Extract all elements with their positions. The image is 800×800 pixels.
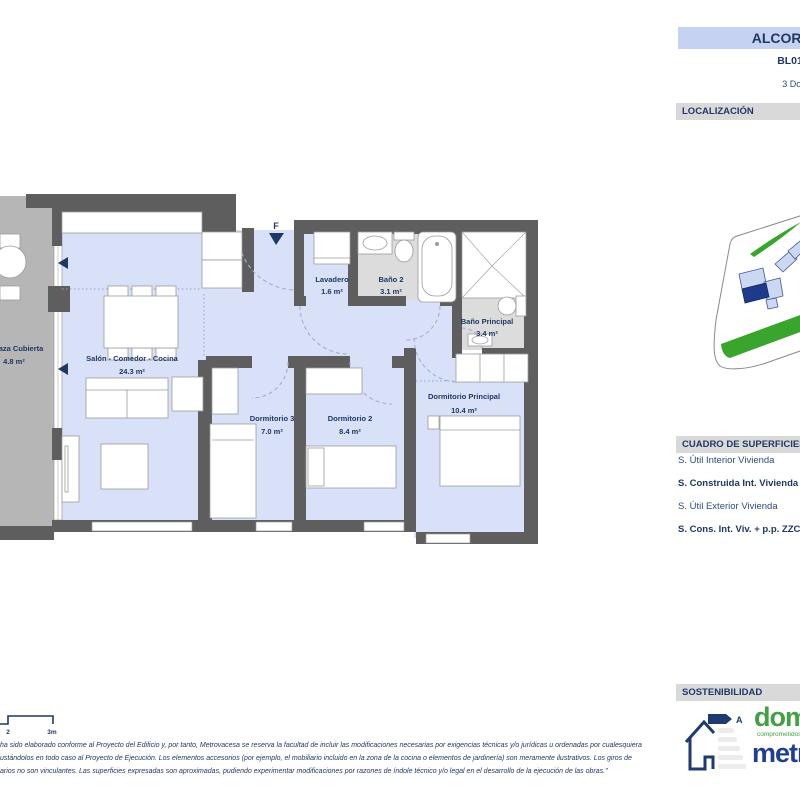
room-name: Dormitorio 2 <box>328 414 373 423</box>
room-name: Lavadero <box>315 275 349 284</box>
energy-rating-letter: A <box>736 715 743 725</box>
room-name: Baño Principal <box>461 317 514 326</box>
room-area: 3.1 m² <box>380 287 402 296</box>
section-superficies: CUADRO DE SUPERFICIES <box>676 436 800 453</box>
bathtub <box>418 232 456 302</box>
scale-tick-label: 3m <box>47 729 57 736</box>
project-title: ALCORA HOMES <box>678 27 800 49</box>
legal-disclaimer: ha sido elaborado conforme al Proyecto d… <box>0 739 800 778</box>
room-name: Baño 2 <box>378 275 403 284</box>
bath1-toilet <box>498 296 526 316</box>
window <box>364 522 404 531</box>
room-name: Dormitorio 3 <box>250 414 295 423</box>
room-area: 3.4 m² <box>476 329 498 338</box>
floorplan-svg: F Terraza Cubierta 4.8 m² Salón - Comedo… <box>0 185 545 550</box>
disclaimer-line: ha sido elaborado conforme al Proyecto d… <box>0 739 800 752</box>
room-name: Salón - Comedor - Cocina <box>86 354 179 363</box>
plan-sheet: ALCORA HOMES BL01_P2_2A 3 Dormitorios LO… <box>0 0 800 800</box>
shower-tray <box>462 232 526 298</box>
bath2-vanity <box>358 232 392 254</box>
room-area: 1.6 m² <box>321 287 343 296</box>
section-sostenibilidad: SOSTENIBILIDAD <box>676 684 800 701</box>
rating-arrow-icon <box>708 714 732 724</box>
armchair <box>172 377 203 411</box>
superficie-row: S. Construida Int. Vivienda <box>678 478 800 489</box>
tv-bench <box>62 436 79 502</box>
domum-tagline: comprometidos <box>757 731 800 738</box>
dwelling-type: 3 Dormitorios <box>678 79 800 89</box>
scale-tick-label: 2 <box>6 729 10 736</box>
room-name: Dormitorio Principal <box>428 392 500 401</box>
kitchen-counter <box>62 212 202 233</box>
window <box>256 522 292 531</box>
room-area: 7.0 m² <box>261 427 283 436</box>
domum-logo: domum <box>754 702 800 733</box>
superficie-row: S. Útil Exterior Vivienda <box>678 501 800 512</box>
disclaimer-line: arios no son vinculantes. Las superficie… <box>0 765 800 778</box>
room-area: 10.4 m² <box>451 406 477 415</box>
kitchen-cabinet <box>202 232 242 288</box>
window <box>92 522 192 531</box>
disclaimer-line: ustándolos en todo caso al Proyecto de E… <box>0 752 800 765</box>
bath2-toilet <box>394 232 414 262</box>
superficie-row: S. Útil Interior Vivienda <box>678 455 800 466</box>
room-area: 8.4 m² <box>339 427 361 436</box>
room-name: Terraza Cubierta <box>0 344 44 353</box>
room-area: 4.8 m² <box>3 357 25 366</box>
location-map <box>688 208 800 376</box>
scale-bar: 2 3m <box>0 710 70 740</box>
coffee-table <box>101 444 148 489</box>
window <box>426 534 470 543</box>
plan-code: BL01_P2_2A <box>678 55 800 67</box>
superficie-row: S. Cons. Int. Viv. + p.p. ZZCC <box>678 524 800 535</box>
washing-machine <box>314 232 350 264</box>
dining-table <box>104 286 178 360</box>
sofa <box>86 378 168 418</box>
entrance-label: F <box>273 221 279 231</box>
section-localizacion: LOCALIZACIÓN <box>676 103 800 120</box>
room-area: 24.3 m² <box>119 367 145 376</box>
